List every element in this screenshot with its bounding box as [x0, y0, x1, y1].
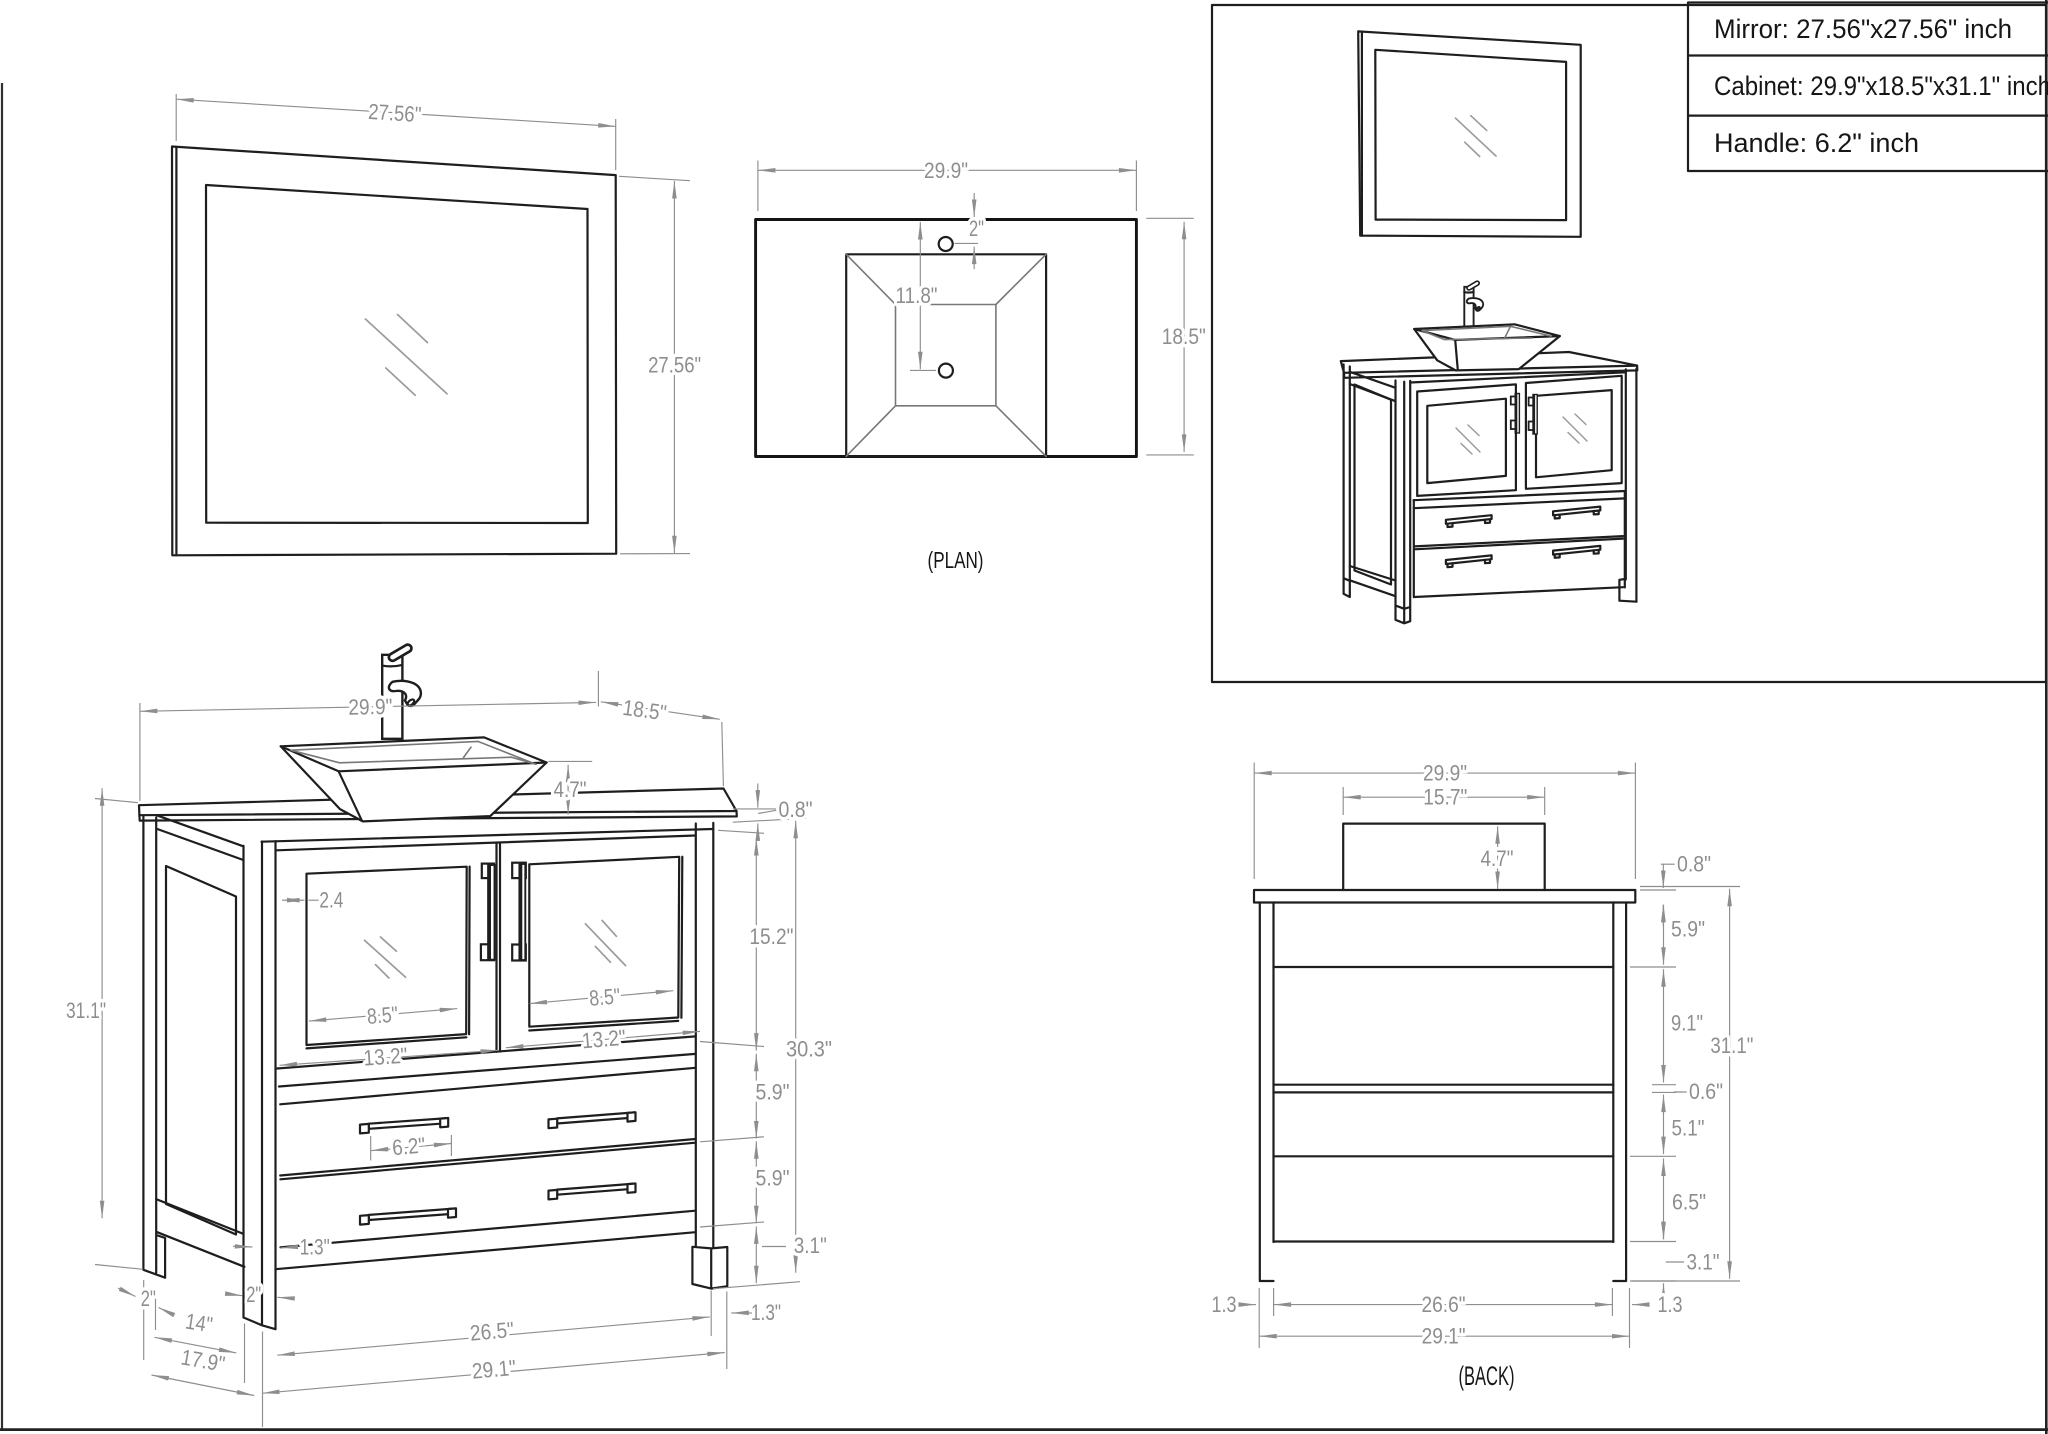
svg-text:5.9": 5.9" — [1671, 916, 1705, 941]
svg-text:15.7": 15.7" — [1423, 785, 1467, 810]
svg-text:Mirror: 27.56"x27.56" inch: Mirror: 27.56"x27.56" inch — [1714, 14, 2012, 44]
svg-text:26.5": 26.5" — [469, 1317, 515, 1346]
svg-text:2.4: 2.4 — [319, 888, 343, 913]
svg-text:30.3": 30.3" — [786, 1036, 832, 1061]
svg-text:1.3": 1.3" — [751, 1300, 781, 1325]
svg-text:1.3: 1.3 — [1212, 1292, 1237, 1317]
svg-text:(BACK): (BACK) — [1459, 1361, 1515, 1391]
svg-text:Cabinet: 29.9"x18.5"x31.1" in: Cabinet: 29.9"x18.5"x31.1" inch — [1714, 71, 2048, 101]
svg-text:9.1": 9.1" — [1671, 1010, 1703, 1035]
svg-text:3.1": 3.1" — [794, 1233, 827, 1258]
svg-text:4.7": 4.7" — [1481, 846, 1514, 871]
svg-text:3.1": 3.1" — [1687, 1249, 1720, 1274]
svg-text:1.3: 1.3 — [1658, 1292, 1683, 1317]
svg-text:5.9": 5.9" — [756, 1166, 790, 1191]
svg-text:29.9": 29.9" — [924, 158, 968, 183]
svg-text:0.6": 0.6" — [1689, 1079, 1723, 1104]
svg-text:Handle: 6.2" inch: Handle: 6.2" inch — [1714, 128, 1919, 158]
svg-text:8.5": 8.5" — [588, 983, 621, 1011]
svg-text:5.9": 5.9" — [756, 1079, 790, 1104]
svg-text:(PLAN): (PLAN) — [928, 547, 984, 573]
svg-text:11.8": 11.8" — [896, 283, 938, 308]
svg-text:6.2": 6.2" — [391, 1133, 426, 1161]
svg-text:14": 14" — [184, 1309, 215, 1338]
svg-text:31.1": 31.1" — [66, 998, 106, 1023]
svg-text:2": 2" — [969, 216, 984, 241]
svg-text:0.8": 0.8" — [1677, 852, 1711, 877]
svg-text:27.56": 27.56" — [368, 99, 422, 127]
svg-text:5.1": 5.1" — [1672, 1115, 1705, 1140]
svg-text:15.2": 15.2" — [749, 924, 793, 949]
svg-text:8.5": 8.5" — [366, 1001, 399, 1029]
svg-text:26.6": 26.6" — [1422, 1292, 1466, 1317]
svg-text:31.1": 31.1" — [1710, 1033, 1753, 1058]
svg-text:27.56": 27.56" — [648, 353, 701, 378]
svg-text:2": 2" — [141, 1286, 156, 1311]
svg-text:0.8": 0.8" — [779, 797, 813, 822]
svg-text:1.3": 1.3" — [300, 1235, 330, 1260]
svg-text:2": 2" — [246, 1282, 261, 1307]
svg-text:29.1": 29.1" — [1422, 1324, 1466, 1349]
svg-text:29.1": 29.1" — [471, 1355, 517, 1384]
svg-text:6.5": 6.5" — [1672, 1189, 1706, 1214]
svg-text:4.7": 4.7" — [554, 777, 587, 802]
svg-text:13.2": 13.2" — [581, 1025, 627, 1054]
svg-text:29.9": 29.9" — [348, 694, 393, 720]
svg-text:18.5": 18.5" — [1162, 324, 1206, 349]
svg-text:13.2": 13.2" — [363, 1043, 409, 1071]
svg-text:29.9": 29.9" — [1423, 761, 1467, 786]
